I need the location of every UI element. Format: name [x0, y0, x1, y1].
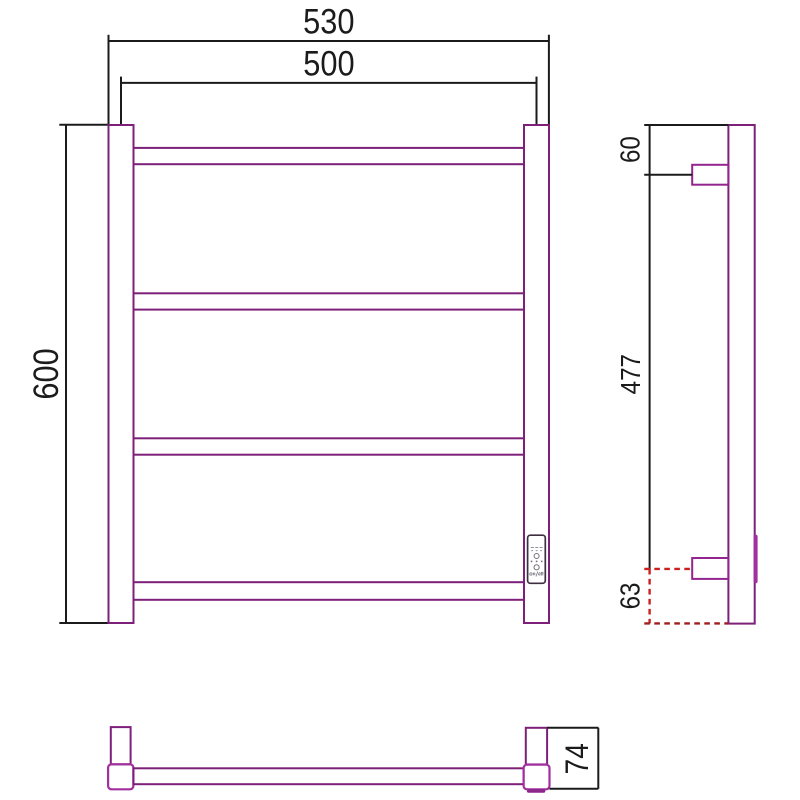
- svg-text:74: 74: [560, 743, 595, 774]
- svg-text:60: 60: [616, 136, 646, 163]
- svg-text:600: 600: [27, 348, 66, 399]
- svg-text:500: 500: [303, 45, 354, 84]
- svg-text:530: 530: [303, 3, 354, 42]
- svg-text:477: 477: [616, 354, 646, 394]
- svg-text:63: 63: [616, 583, 646, 610]
